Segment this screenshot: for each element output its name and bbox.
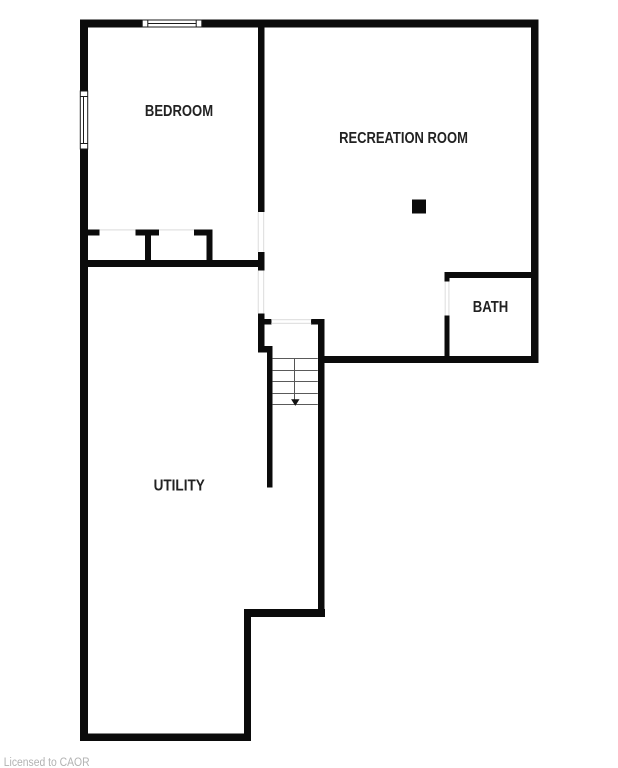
svg-text:BATH: BATH	[473, 299, 509, 316]
svg-text:BEDROOM: BEDROOM	[145, 103, 213, 120]
svg-text:UTILITY: UTILITY	[154, 478, 206, 495]
svg-text:RECREATION ROOM: RECREATION ROOM	[339, 130, 468, 147]
svg-text:Licensed to CAOR: Licensed to CAOR	[4, 755, 90, 768]
